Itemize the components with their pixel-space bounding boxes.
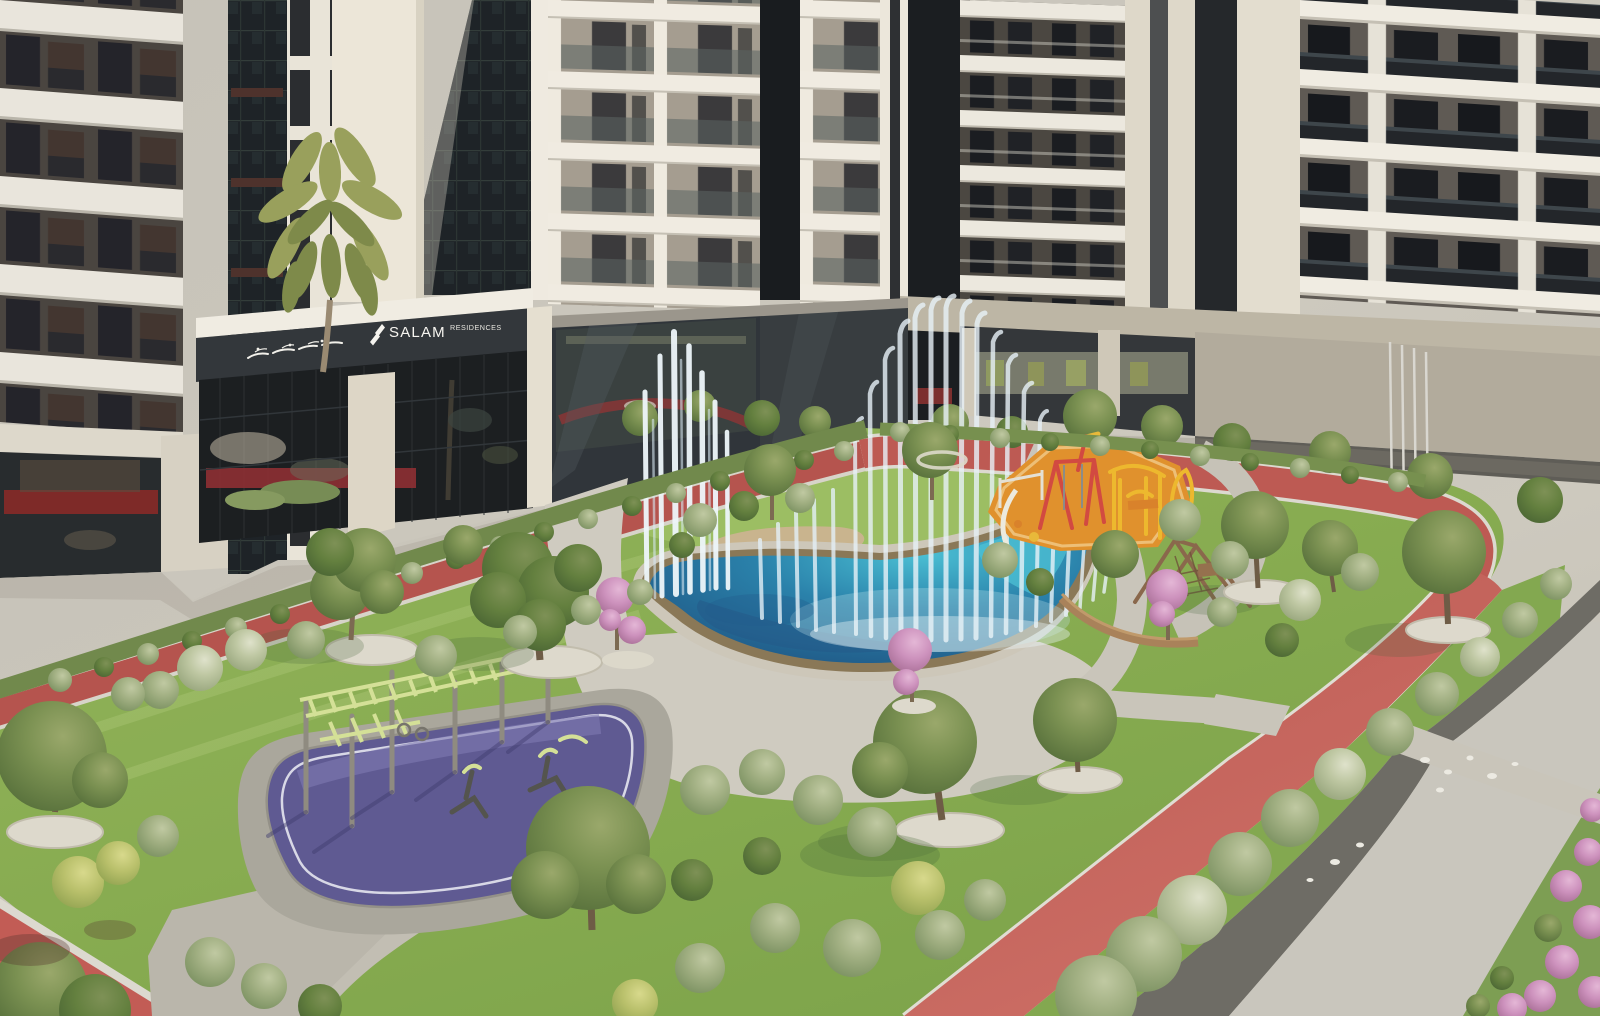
svg-text:SALAM: SALAM <box>389 324 446 341</box>
svg-text:RESIDENCES: RESIDENCES <box>450 323 502 332</box>
